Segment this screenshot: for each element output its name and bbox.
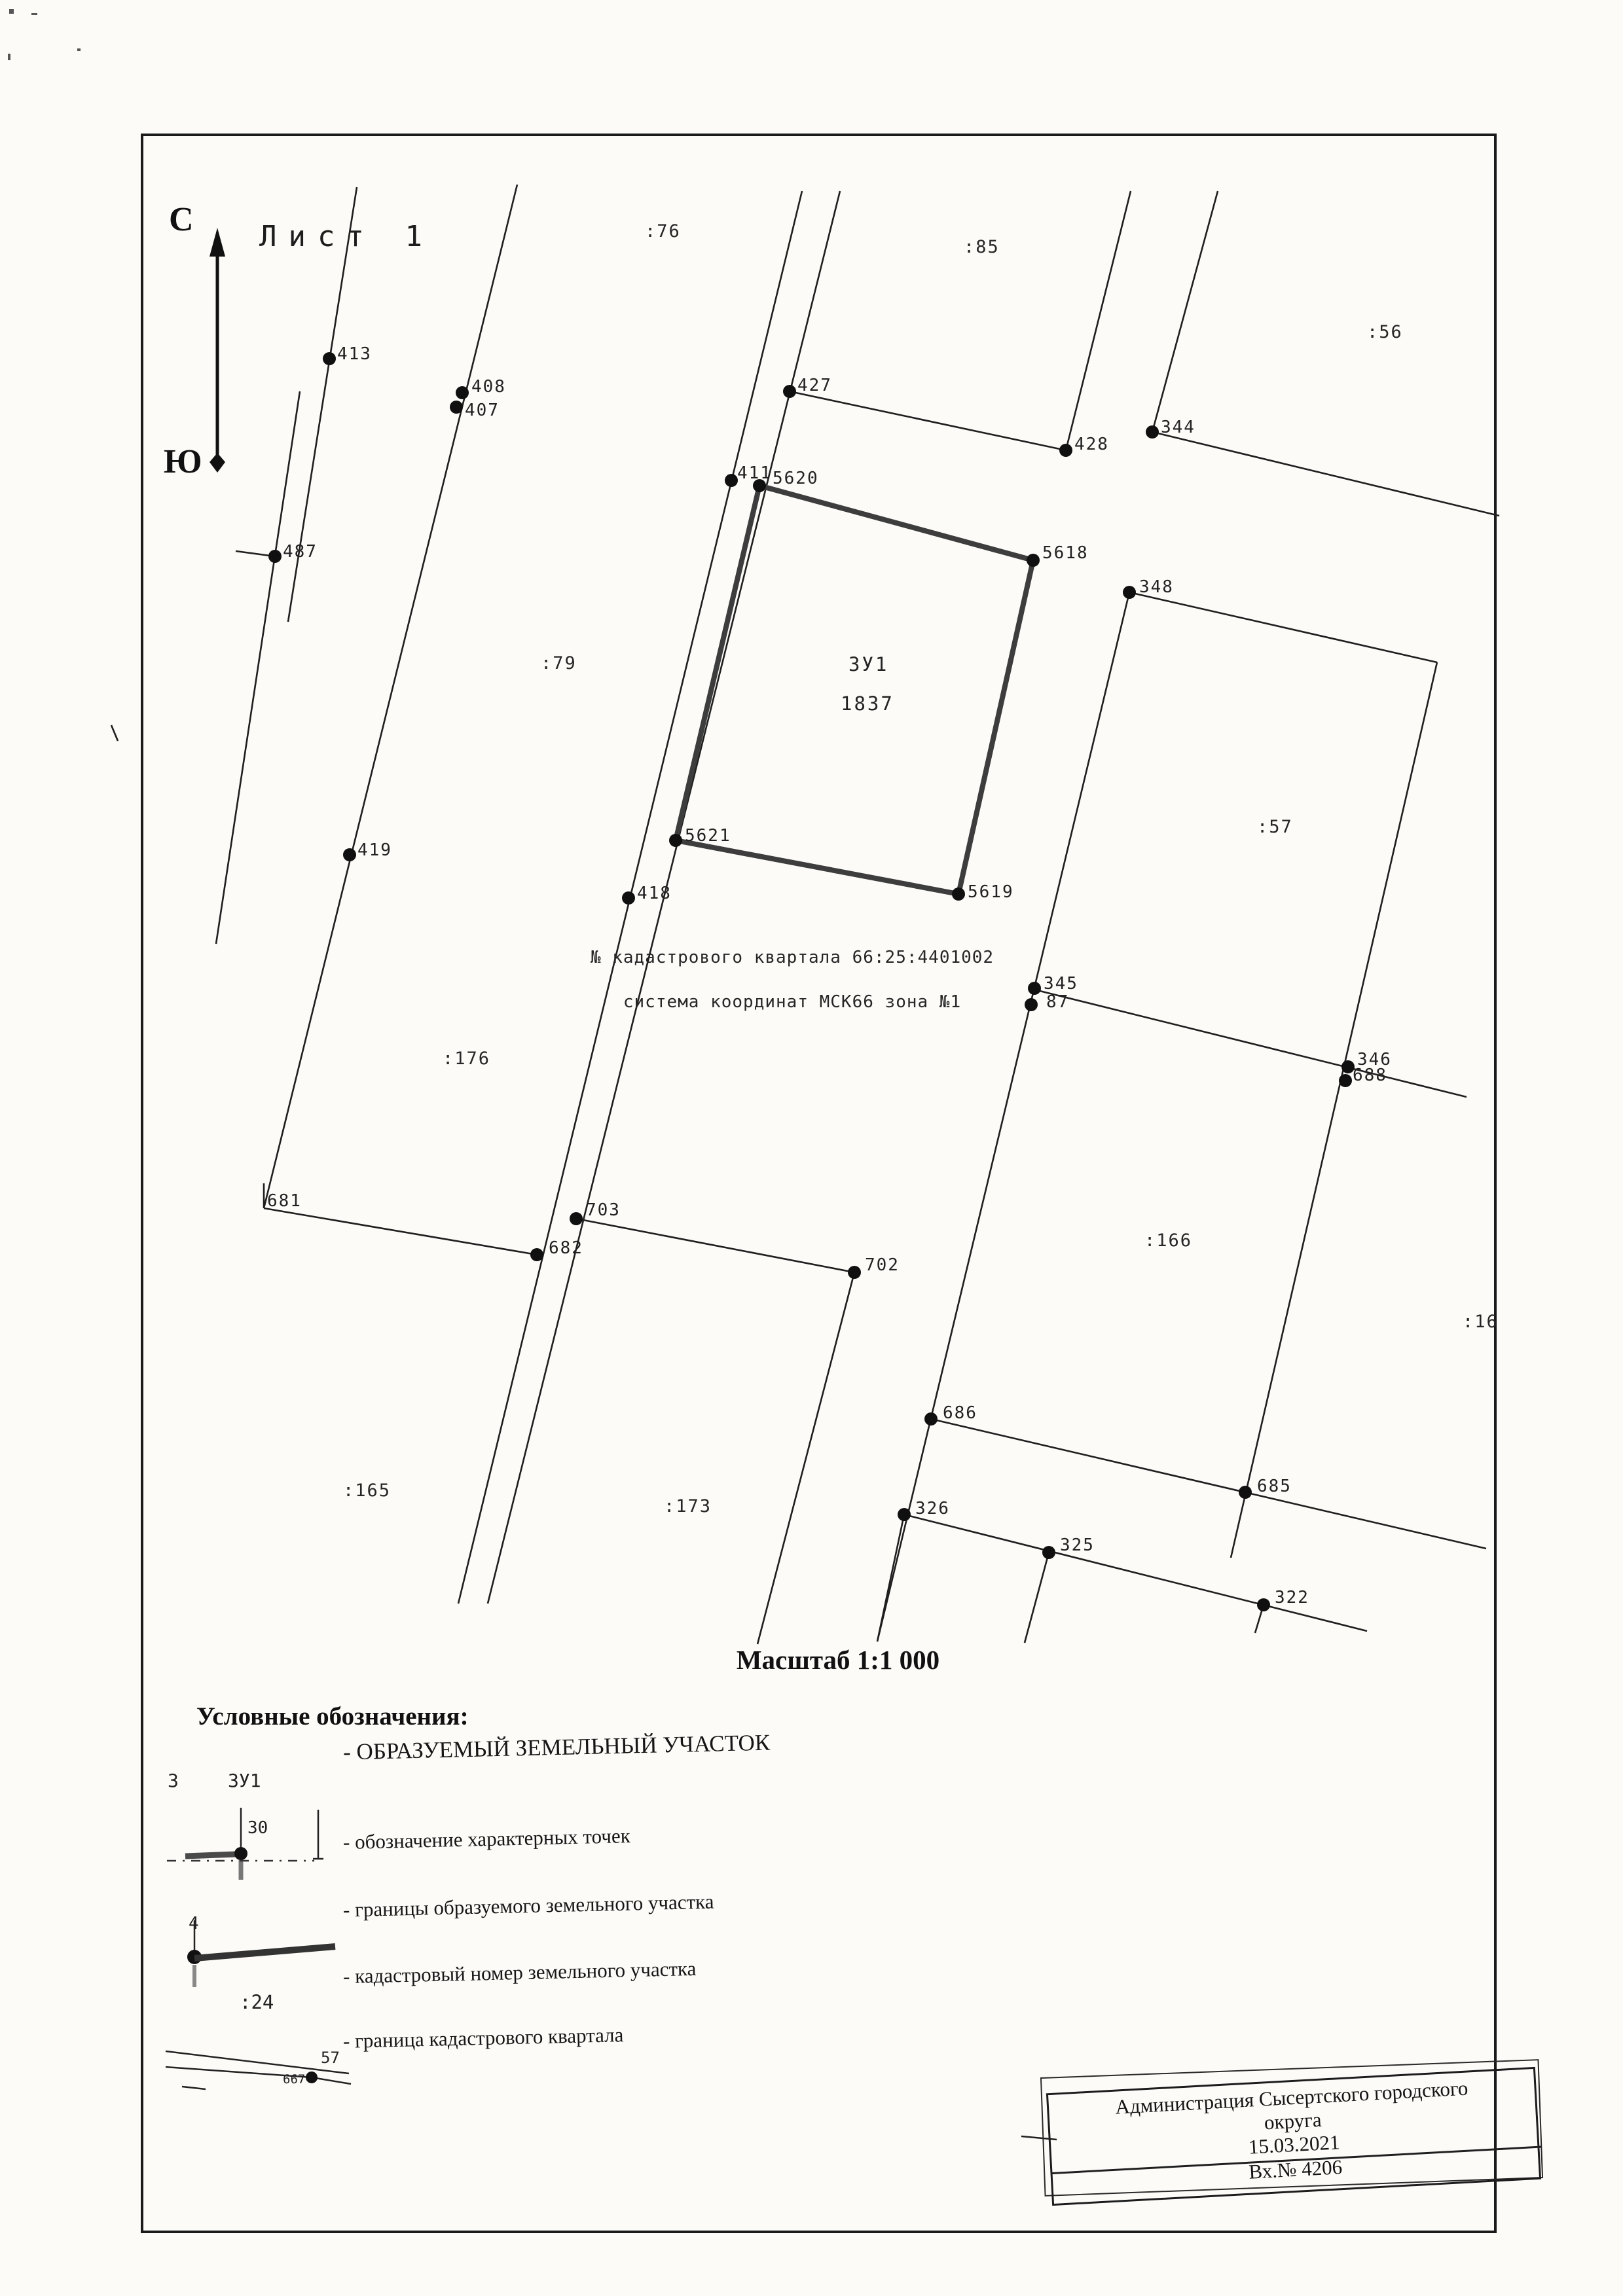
map-point-dot-5621 — [669, 834, 682, 847]
scanned-cadastral-sheet: С Ю Лист 1 41340840748742742834441156205… — [0, 0, 1623, 2296]
map-point-label-419: 419 — [357, 840, 392, 860]
formed-parcel-area: 1837 — [841, 692, 894, 715]
map-point-label-686: 686 — [943, 1403, 977, 1423]
map-point-label-703: 703 — [586, 1200, 621, 1220]
map-point-label-427: 427 — [797, 376, 832, 395]
boundary-line — [877, 1515, 904, 1641]
map-point-label-413: 413 — [337, 344, 372, 364]
map-point-label-345: 345 — [1044, 974, 1078, 994]
sheet-title: Лист 1 — [259, 220, 434, 253]
map-point-dot-419 — [343, 848, 356, 861]
map-point-dot-487 — [268, 550, 282, 563]
map-point-label-344: 344 — [1161, 418, 1195, 437]
map-point-dot-702 — [848, 1266, 861, 1279]
quarter-number-note: № кадастрового квартала 66:25:4401002 — [589, 948, 995, 967]
map-point-label-681: 681 — [267, 1191, 302, 1211]
parcel-label-173: :173 — [664, 1496, 712, 1516]
map-point-dot-682 — [530, 1248, 543, 1261]
map-point-dot-703 — [570, 1212, 583, 1225]
map-point-dot-87 — [1025, 998, 1038, 1011]
north-arrow — [210, 228, 225, 473]
parcel-label-76: :76 — [645, 221, 681, 242]
map-point-dot-5618 — [1027, 554, 1040, 567]
map-point-label-408: 408 — [471, 377, 506, 397]
map-point-dot-418 — [622, 891, 635, 905]
legend-sample-quarter-number-small: 667 — [283, 2072, 305, 2087]
boundary-line — [576, 1219, 854, 1272]
parcel-label-166: :166 — [1144, 1230, 1192, 1251]
parcel-label-165: :165 — [343, 1480, 391, 1501]
map-point-dot-408 — [456, 386, 469, 399]
parcel-label-85: :85 — [964, 237, 1000, 257]
map-point-label-348: 348 — [1139, 577, 1174, 597]
legend-symbol-characteristic-point — [167, 1808, 323, 1880]
parcel-label-176: :176 — [443, 1049, 490, 1069]
map-point-label-487: 487 — [283, 542, 318, 562]
legend-sample-point-number: 30 — [247, 1818, 268, 1838]
map-point-dot-413 — [323, 352, 336, 365]
parcel-label-79: :79 — [541, 653, 577, 673]
boundary-line — [1152, 432, 1499, 516]
boundary-line — [931, 1419, 1486, 1549]
scale-label: Масштаб 1:1 000 — [681, 1644, 995, 1676]
map-point-dot-322 — [1257, 1598, 1270, 1611]
legend-sample-cadastral-number: :24 — [240, 1991, 274, 2013]
map-point-dot-348 — [1123, 586, 1136, 599]
boundary-line — [264, 1208, 537, 1255]
boundary-line — [1129, 592, 1437, 662]
map-point-label-411: 411 — [737, 463, 772, 483]
boundary-line — [1152, 191, 1218, 432]
characteristic-point-dots — [268, 352, 1355, 1611]
map-point-dot-5619 — [952, 888, 965, 901]
south-label: Ю — [164, 442, 202, 481]
parcel-label-56: :56 — [1367, 322, 1403, 342]
cadastral-map-canvas — [0, 0, 1623, 2296]
boundary-line — [877, 592, 1129, 1641]
boundary-line — [904, 1515, 1367, 1631]
boundary-line — [1231, 662, 1437, 1558]
map-point-dot-411 — [725, 474, 738, 487]
map-point-label-5620: 5620 — [773, 469, 819, 488]
map-point-label-5619: 5619 — [968, 882, 1014, 902]
legend-symbol-formed-boundary — [187, 1920, 335, 1987]
coordinate-system-note: система координат МСК66 зона №1 — [589, 992, 995, 1012]
legend-sample-quarter-number: 57 — [321, 2049, 340, 2067]
map-point-dot-407 — [450, 401, 463, 414]
parcel-label-57: :57 — [1257, 817, 1293, 837]
map-point-label-322: 322 — [1275, 1588, 1309, 1607]
map-point-label-407: 407 — [465, 401, 500, 420]
boundary-line — [1034, 990, 1467, 1097]
map-point-dot-325 — [1042, 1546, 1055, 1559]
map-point-dot-345 — [1028, 982, 1041, 995]
formed-parcel-label: ЗУ1 — [848, 653, 888, 675]
map-point-label-702: 702 — [865, 1255, 900, 1275]
map-point-label-325: 325 — [1060, 1535, 1095, 1555]
legend-sample-boundary-number: 4 — [189, 1914, 199, 1933]
map-point-label-682: 682 — [549, 1238, 583, 1258]
map-point-dot-428 — [1059, 444, 1072, 457]
boundary-line — [1066, 191, 1131, 450]
boundary-line — [790, 391, 1066, 450]
map-point-dot-688 — [1339, 1074, 1352, 1087]
map-point-dot-427 — [783, 385, 796, 398]
map-point-label-5621: 5621 — [685, 826, 731, 846]
map-point-dot-685 — [1239, 1486, 1252, 1499]
map-point-label-685: 685 — [1257, 1477, 1292, 1496]
legend-sample-zu-partial: 3 — [168, 1770, 179, 1791]
map-point-label-326: 326 — [915, 1499, 950, 1518]
boundary-line — [216, 391, 300, 944]
legend-sample-zu: ЗУ1 — [228, 1770, 261, 1791]
map-point-dot-326 — [898, 1508, 911, 1521]
parcel-label-16: :16 — [1463, 1312, 1499, 1332]
map-point-dot-686 — [924, 1412, 938, 1426]
map-point-label-5618: 5618 — [1042, 543, 1089, 563]
boundary-line — [111, 725, 118, 741]
map-point-dot-344 — [1146, 425, 1159, 439]
map-point-label-688: 688 — [1353, 1066, 1387, 1085]
boundary-line — [757, 1272, 854, 1644]
legend-title: Условные обозначения: — [196, 1702, 469, 1731]
north-label: С — [169, 200, 194, 239]
boundary-line — [1025, 1552, 1049, 1643]
map-point-label-428: 428 — [1074, 435, 1109, 454]
map-point-label-418: 418 — [637, 884, 672, 903]
map-point-label-87: 87 — [1046, 992, 1069, 1012]
